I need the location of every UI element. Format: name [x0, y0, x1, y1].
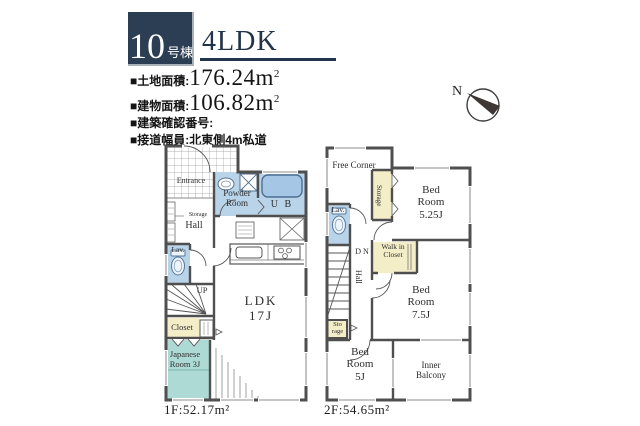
- floor2-area-label: 2F:54.65m²: [324, 402, 390, 418]
- entry-arrow-icon-2f: [351, 325, 357, 331]
- property-specs: ■土地面積: 176.24m 2 ■建物面積: 106.82m 2 ■建築確認番…: [130, 66, 390, 150]
- room-label-free-corner: Free Corner: [332, 160, 376, 170]
- stairs-down: [327, 247, 350, 318]
- spec-building-area-value: 106.82m: [189, 91, 274, 114]
- sliding-partition-fan: [216, 348, 258, 400]
- room-label-storage-small: Sto rage: [328, 321, 347, 336]
- spec-building-area-sup: 2: [274, 94, 280, 105]
- page-title: 4LDK: [202, 26, 278, 58]
- floor1-plan: Entrance Powder Room U B Storage Hall La…: [160, 144, 316, 404]
- kitchen-counter: [230, 244, 306, 264]
- title-underline: [200, 58, 336, 61]
- room-label-unit-bath: U B: [260, 199, 304, 210]
- spec-land-area-sup: 2: [274, 69, 280, 80]
- floor2-plan: Free Corner Storage Bed Room 5.25J Lav. …: [322, 144, 476, 404]
- building-number-badge: 10 号棟: [128, 12, 194, 66]
- room-label-storage-1f: Storage: [180, 212, 216, 219]
- room-label-lavatory-1f: Lav.: [166, 246, 190, 254]
- kitchen-sink-icon: [236, 247, 262, 258]
- compass-needle: [467, 93, 500, 115]
- room-label-closet: Closet: [166, 323, 198, 333]
- label-stairs-up: UP: [192, 286, 212, 296]
- entry-arrow-icon: [216, 329, 222, 335]
- cupboard-icon: [236, 222, 254, 238]
- floor1-area-label: 1F:52.17m²: [164, 402, 230, 418]
- compass-north-label: N: [450, 84, 464, 100]
- building-number-suffix: 号棟: [167, 44, 193, 62]
- room-label-bedroom-5: Bed Room 5J: [343, 346, 377, 383]
- room-label-inner-balcony: Inner Balcony: [406, 360, 456, 380]
- mini-storage-icon: [200, 320, 213, 337]
- spec-land-area-label: ■土地面積:: [130, 75, 189, 87]
- spec-building-area: ■建物面積: 106.82m 2: [130, 91, 390, 114]
- room-label-hall-2f: Hall: [353, 262, 362, 292]
- building-number: 10: [129, 30, 165, 62]
- room-label-entrance: Entrance: [168, 177, 214, 186]
- spec-land-area-value: 176.24m: [189, 66, 274, 89]
- porch-tiles: [166, 146, 238, 172]
- room-label-walk-in-closet: Walk in Closet: [380, 243, 406, 260]
- room-label-powder-room: Powder Room: [217, 188, 257, 208]
- stove-icon: [274, 246, 300, 259]
- floorplan-flyer: 10 号棟 4LDK ■土地面積: 176.24m 2 ■建物面積: 106.8…: [0, 0, 640, 426]
- room-label-bedroom-75: Bed Room 7.5J: [404, 284, 438, 321]
- room-label-bedroom-525: Bed Room 5.25J: [414, 184, 448, 221]
- spec-building-area-label: ■建物面積:: [130, 100, 189, 112]
- spec-land-area: ■土地面積: 176.24m 2: [130, 66, 390, 89]
- room-label-hall-1f: Hall: [174, 220, 214, 231]
- refrigerator-space-icon: [280, 218, 304, 240]
- room-label-storage-2f: Storage: [374, 174, 382, 218]
- spec-confirmation-number: ■建築確認番号:: [130, 116, 390, 131]
- room-label-ldk: LDK 17J: [232, 294, 290, 323]
- label-stairs-down: D N: [350, 248, 374, 257]
- bathtub-icon: [262, 175, 302, 197]
- compass: N: [448, 78, 512, 139]
- room-label-lavatory-2f: Lav.: [327, 206, 349, 214]
- room-label-japanese-room: Japanese Room 3J: [168, 350, 202, 369]
